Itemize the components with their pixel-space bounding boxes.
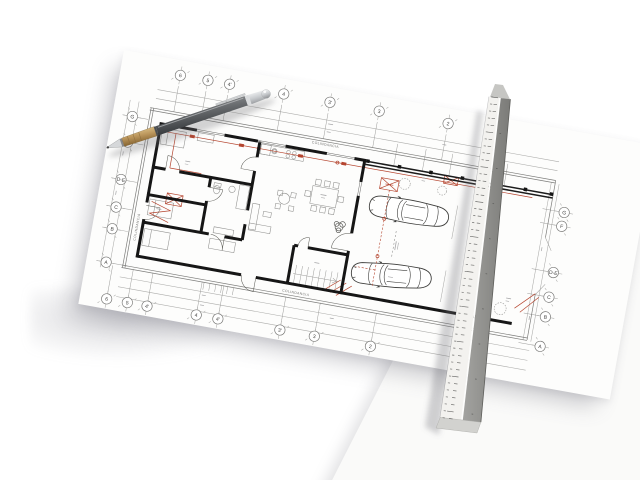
grid-axis-bubble: A: [96, 252, 117, 272]
grid-axis-bubble: 3: [305, 326, 325, 347]
ballpoint-pen: [94, 76, 284, 160]
grid-axis-bubble: D-E: [111, 170, 132, 190]
grid-axis-bubble: C: [539, 287, 560, 307]
grid-axis-bubble: D-E: [543, 263, 564, 283]
scale-ruler: [430, 88, 530, 440]
grid-axis-bubble: G: [554, 203, 575, 223]
grid-axis-bubble: 3': [320, 92, 340, 113]
grid-axis-bubble: C: [106, 197, 127, 217]
grid-axis-bubble: A: [530, 337, 551, 357]
photo-scene: 654'43'32654'44'3'32GFD-ECBAGFD-ECBA COL…: [0, 0, 640, 480]
grid-axis-bubble: 4: [186, 305, 206, 326]
grid-axis-bubble: B: [535, 307, 556, 327]
plant-icon: [333, 220, 346, 233]
car-2: [350, 259, 432, 293]
grid-axis-bubble: 3': [270, 320, 290, 341]
pen-dome-highlight: [264, 91, 267, 94]
grid-axis-bubble: 5: [118, 292, 138, 313]
grid-axis-bubble: F: [551, 217, 572, 237]
grid-axis-bubble: 4': [208, 309, 228, 330]
grid-axis-bubble: B: [102, 219, 123, 239]
grid-axis-bubble: 2: [361, 336, 381, 357]
grid-axis-bubble: 4': [137, 296, 157, 317]
pen-ball-tip: [107, 146, 109, 148]
door-swings: [135, 139, 362, 307]
grid-axis-bubble: 6: [97, 289, 117, 310]
grid-axis-bubble: 3: [369, 101, 389, 122]
pen-end-dome: [262, 90, 271, 99]
